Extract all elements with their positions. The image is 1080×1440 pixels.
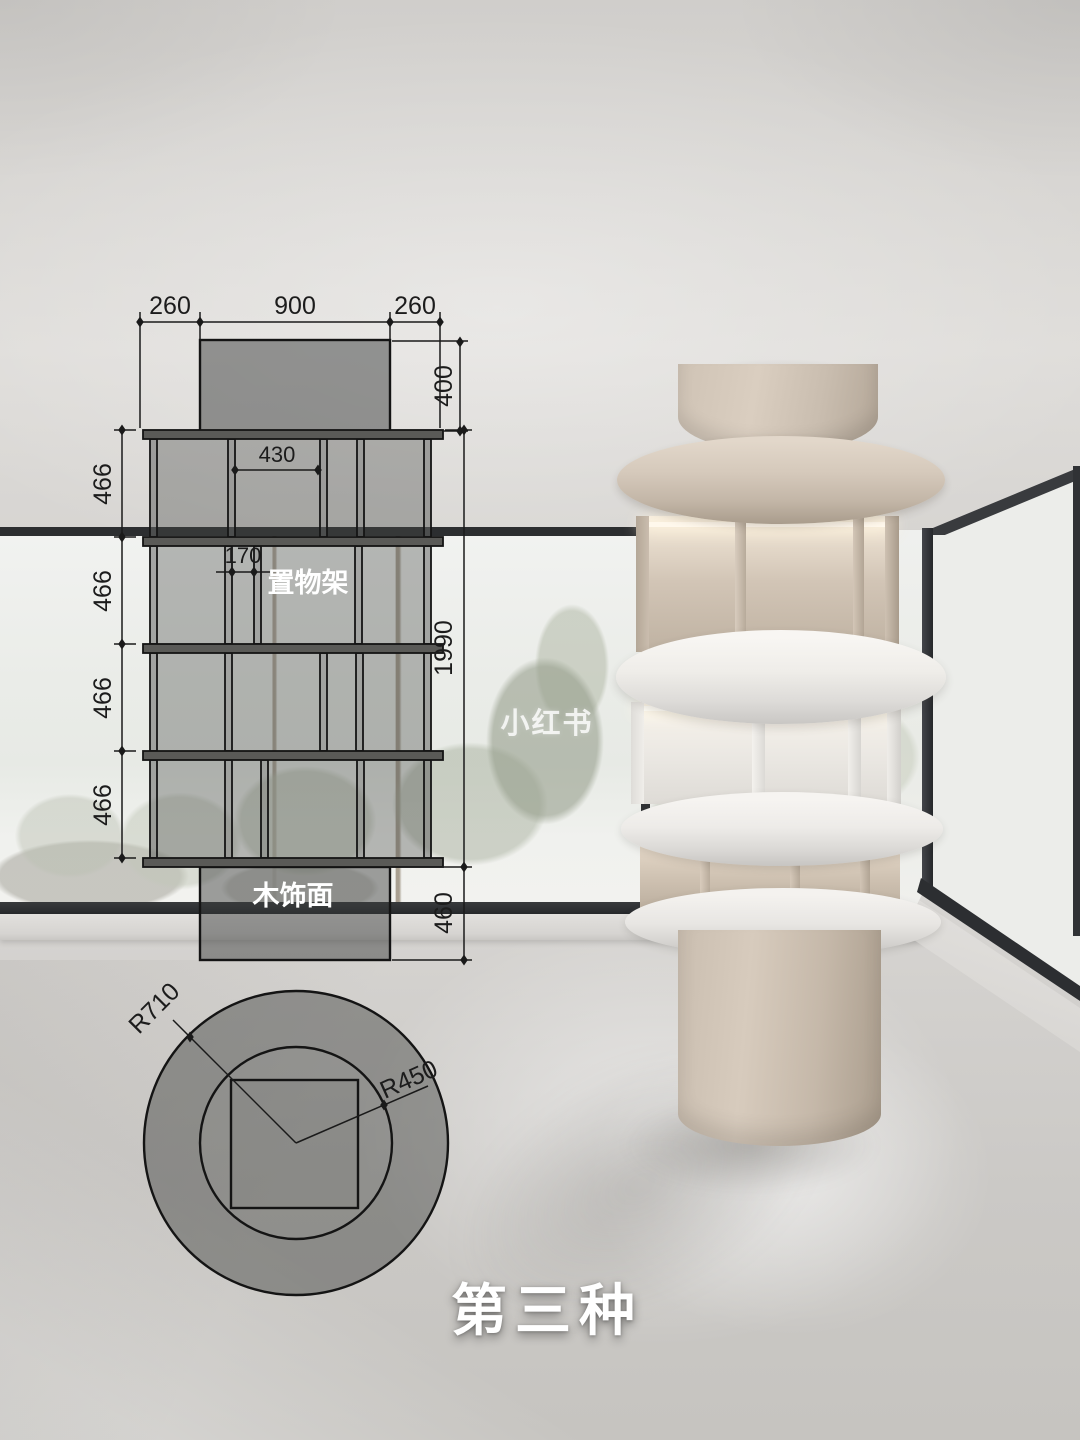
dim-row-1: 466 <box>89 463 117 505</box>
watermark: 小红书 <box>492 700 602 742</box>
dim-top-height: 400 <box>430 365 458 407</box>
dim-slot: 170 <box>225 543 262 568</box>
dim-top-width: 900 <box>274 292 316 320</box>
label-wood-veneer: 木饰面 <box>252 881 334 911</box>
dim-row-4: 466 <box>89 784 117 826</box>
dim-opening: 430 <box>259 442 296 467</box>
dim-left-margin: 260 <box>149 292 191 320</box>
title-badge: 第三种 <box>397 1266 697 1347</box>
scene-room: 260 900 260 400 466 466 466 466 1990 460… <box>0 0 1080 1440</box>
dim-right-margin: 260 <box>394 292 436 320</box>
label-shelf: 置物架 <box>268 568 349 598</box>
dim-total-height: 1990 <box>430 620 458 676</box>
dim-row-2: 466 <box>89 570 117 612</box>
dim-row-3: 466 <box>89 677 117 719</box>
dim-outer-radius: R710 <box>123 977 185 1039</box>
dim-base-height: 460 <box>430 892 458 934</box>
